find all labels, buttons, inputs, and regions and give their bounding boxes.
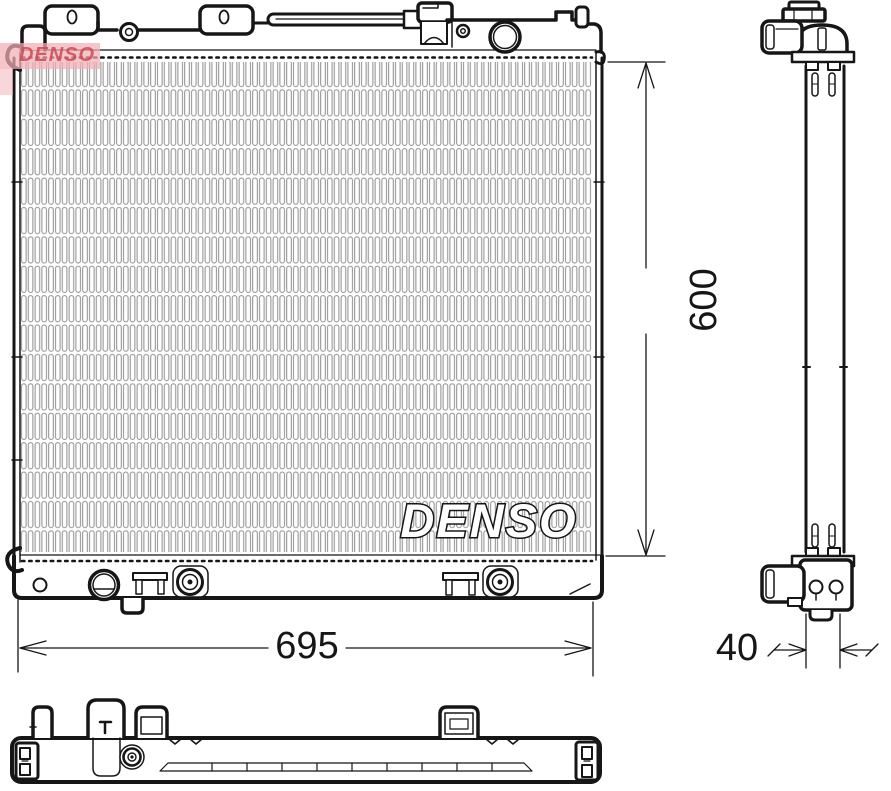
bottom-tank	[14, 556, 602, 613]
bottom-view-left-clip	[16, 743, 38, 779]
dimension-width: 695	[18, 600, 593, 676]
filler-neck-front	[421, 22, 447, 44]
radiator-technical-drawing: DENSO DENSO 600 695 40	[0, 0, 891, 791]
dimension-depth: 40	[716, 614, 878, 669]
small-boss-hole	[457, 25, 469, 37]
bottom-view	[12, 700, 600, 782]
side-view	[762, 2, 854, 620]
right-tank-edge	[594, 52, 604, 562]
filler-opening	[490, 22, 520, 52]
top-right-tab	[576, 7, 588, 27]
bottom-grommet-1	[173, 566, 208, 597]
top-tank	[22, 3, 601, 52]
bottom-view-grommet	[120, 745, 144, 769]
left-tank-edge	[7, 46, 22, 571]
denso-core-watermark: DENSO	[400, 494, 577, 547]
width-dimension-label: 695	[275, 625, 338, 667]
bottom-view-rib-strip	[160, 763, 532, 771]
depth-dimension-label: 40	[716, 627, 758, 669]
side-bottom-tab	[810, 610, 832, 620]
side-bottom-block	[800, 560, 852, 610]
mount-bracket-2	[200, 6, 253, 34]
radiator-core	[20, 62, 592, 552]
height-dimension-label: 600	[683, 268, 725, 331]
bottom-view-right-clip	[576, 742, 598, 780]
denso-brand-watermark-text: DENSO	[19, 44, 95, 66]
bottom-bracket-2	[443, 573, 478, 580]
bottom-tab	[122, 598, 143, 613]
bottom-grommet-2	[483, 566, 518, 597]
bottom-bracket-1	[133, 573, 167, 580]
radiator-drawing-canvas: DENSO DENSO 600 695 40	[0, 0, 891, 791]
drain-plug	[90, 571, 119, 600]
top-ring-boss	[121, 24, 138, 41]
bottom-small-hole	[34, 579, 47, 592]
bottom-view-pipe-stub	[33, 707, 52, 738]
side-cap	[783, 9, 825, 21]
side-upper-flange	[792, 52, 854, 62]
dimension-height: 600	[606, 62, 725, 556]
front-view: DENSO DENSO	[0, 3, 604, 613]
